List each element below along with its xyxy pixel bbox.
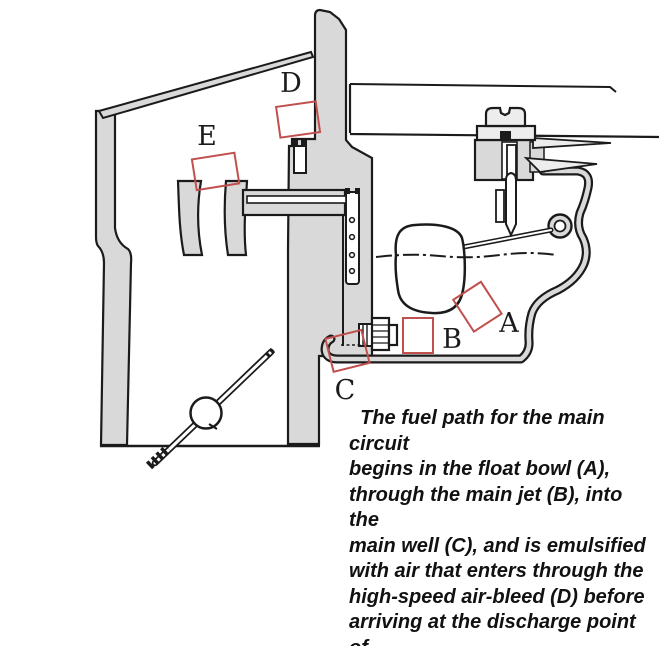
emulsion-tube — [345, 188, 360, 284]
emulsion-hole — [350, 218, 355, 223]
caption-text: The fuel path for the main circuit begin… — [349, 406, 653, 646]
needle-seat-stem — [507, 145, 516, 175]
callout-letter-c: C — [335, 375, 356, 406]
air-bleed-channel — [294, 146, 306, 173]
throttle-plate — [149, 349, 274, 466]
fuel-passage-upper — [533, 138, 611, 148]
callout-letter-a: A — [498, 308, 519, 339]
callout-letter-b: B — [442, 324, 462, 355]
callout-rect-b — [403, 318, 433, 353]
needle-clip — [496, 190, 504, 222]
emulsion-hole — [350, 269, 355, 274]
discharge-passage — [247, 196, 346, 203]
float-pivot — [549, 215, 572, 238]
air-bleed-orifice — [301, 138, 307, 147]
throttle-shaft — [191, 398, 222, 429]
inlet-orifice — [500, 131, 511, 141]
booster-venturi-left-wall — [178, 181, 202, 255]
emulsion-hole — [350, 253, 355, 258]
callout-rect-d — [276, 101, 320, 137]
emulsion-hole — [350, 235, 355, 240]
carburetor-diagram: A B C D E The fuel path for the main cir… — [0, 0, 661, 646]
bowl-cover-top-line — [350, 84, 616, 92]
callout-letter-d: D — [280, 68, 302, 99]
air-bleed-orifice — [292, 138, 298, 147]
needle-valve — [496, 173, 516, 235]
fuel-inlet-bolt — [477, 108, 535, 141]
bore-left-wall — [96, 111, 131, 445]
callout-letter-e: E — [197, 121, 217, 152]
